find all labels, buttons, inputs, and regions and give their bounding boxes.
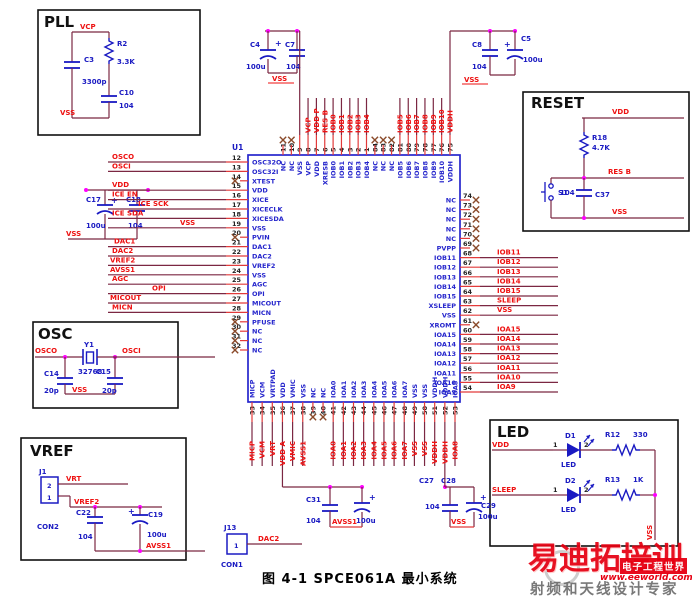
pin-number: 2 bbox=[47, 482, 52, 490]
pin-name: VCM bbox=[259, 382, 267, 398]
net-label: VSS bbox=[497, 306, 512, 314]
pin-name: NC bbox=[309, 388, 317, 398]
net-label: VSS bbox=[464, 76, 479, 84]
pin-name: VSS bbox=[421, 384, 429, 398]
net-label: VSS bbox=[66, 230, 81, 238]
pin-name: NC bbox=[252, 337, 262, 345]
pin-name: MICN bbox=[252, 309, 271, 317]
net-label: IOA14 bbox=[497, 335, 521, 343]
crystal-body bbox=[87, 352, 94, 363]
pin-name: IOA8 bbox=[452, 380, 460, 398]
net-label: AVSS1 bbox=[299, 441, 307, 466]
pin-name: IOA2 bbox=[350, 381, 358, 398]
net-label: IOA0 bbox=[330, 441, 338, 460]
pin-name: IOB15 bbox=[434, 293, 456, 301]
net-label: MICOUT bbox=[110, 294, 141, 302]
net-label: VMIC bbox=[289, 441, 297, 461]
pin-name: NC bbox=[446, 206, 456, 214]
component-ref: Y1 bbox=[83, 341, 94, 349]
polarity-plus: + bbox=[128, 507, 135, 516]
component-ref: C14 bbox=[44, 370, 59, 378]
component-ref: R18 bbox=[592, 134, 607, 142]
net-label: VDDH bbox=[431, 441, 439, 464]
net-label: VDDH bbox=[447, 110, 455, 133]
net-label: IOA13 bbox=[497, 345, 521, 353]
net-label: IOB11 bbox=[497, 249, 521, 257]
pin-number: 65 bbox=[463, 278, 473, 286]
pin-number: 24 bbox=[232, 267, 242, 275]
component-ref: J13 bbox=[223, 524, 236, 532]
component-value: 20p bbox=[102, 387, 117, 395]
component-value: 100u bbox=[147, 531, 167, 539]
pin-name: IOB3 bbox=[355, 161, 363, 178]
component-ref: C15 bbox=[96, 368, 111, 376]
pin-number: 21 bbox=[232, 239, 242, 247]
net-label: ICE SDA bbox=[112, 209, 144, 217]
component-value: 100u bbox=[86, 222, 106, 230]
pin-name: NC bbox=[446, 216, 456, 224]
component-ref: C3 bbox=[84, 56, 94, 64]
net-label: IOB2 bbox=[346, 114, 354, 133]
net-label: VDD A bbox=[279, 440, 287, 465]
net-label: VSS bbox=[612, 208, 627, 216]
pin-number: 72 bbox=[463, 211, 472, 219]
pin-name: IOB13 bbox=[434, 273, 456, 281]
component-ref: D1 bbox=[565, 432, 576, 440]
component-ref: R12 bbox=[605, 431, 620, 439]
component-value: 104 bbox=[128, 222, 143, 230]
component-value: 104 bbox=[286, 63, 301, 71]
component-value: 104 bbox=[78, 533, 93, 541]
net-label: VDDH bbox=[441, 441, 449, 464]
component-label: LED bbox=[561, 461, 576, 469]
pin-number: 57 bbox=[463, 355, 472, 363]
led-title: LED bbox=[497, 423, 529, 441]
component-ref: D2 bbox=[565, 477, 576, 485]
net-label: IOA11 bbox=[497, 364, 521, 372]
pin-name: IOA4 bbox=[370, 380, 378, 398]
net-label: IOB1 bbox=[338, 114, 346, 133]
net-label: DAC1 bbox=[114, 238, 135, 246]
junction-dot bbox=[84, 188, 88, 192]
pin-name: VSS bbox=[442, 312, 456, 320]
chip-ref: U1 bbox=[232, 143, 243, 152]
net-label: VCP bbox=[305, 117, 313, 133]
net-label: IOA3 bbox=[360, 441, 368, 460]
pin-name: IOB14 bbox=[434, 283, 456, 291]
polarity-plus: + bbox=[369, 493, 376, 502]
pin-number: 1 bbox=[553, 486, 558, 494]
component-ref: C19 bbox=[148, 511, 163, 519]
net-label: OPI bbox=[152, 285, 166, 293]
net-label: IOB3 bbox=[355, 114, 363, 133]
pin-number: 62 bbox=[463, 307, 472, 315]
component-value: 1K bbox=[633, 476, 644, 484]
pin-name: VDD bbox=[252, 187, 268, 195]
component-ref: C8 bbox=[472, 41, 482, 49]
component-ref: R13 bbox=[605, 476, 620, 484]
pin-number: 68 bbox=[463, 250, 473, 258]
pin-name: VREF2 bbox=[252, 262, 275, 270]
pin-name: XICESDA bbox=[252, 215, 284, 223]
pin-name: XTEST bbox=[252, 177, 276, 185]
pin-number: 23 bbox=[232, 257, 241, 265]
pin-number: 60 bbox=[463, 326, 473, 334]
pin-name: IOB12 bbox=[434, 264, 456, 272]
pin-name: OSC32O bbox=[252, 159, 282, 167]
component-value: 100u bbox=[356, 517, 376, 525]
pin-name: VSS bbox=[296, 161, 304, 175]
net-label: OSCO bbox=[112, 153, 134, 161]
pin-name: VSS bbox=[411, 384, 419, 398]
pin-name: NC bbox=[446, 225, 456, 233]
component-value: 104 bbox=[472, 63, 487, 71]
component-value: 330 bbox=[633, 431, 648, 439]
net-label: VSS bbox=[421, 441, 429, 456]
pin-number: 12 bbox=[232, 154, 241, 162]
net-label: IOA1 bbox=[340, 441, 348, 460]
pin-name: VSS bbox=[252, 224, 266, 232]
pin-number: 17 bbox=[232, 201, 241, 209]
capacitor-plate-curved bbox=[97, 211, 113, 214]
component-ref: C7 bbox=[285, 41, 295, 49]
net-label: IOA12 bbox=[497, 354, 521, 362]
pin-name: DAC1 bbox=[252, 243, 272, 251]
pin-name: XRESB bbox=[321, 161, 329, 185]
net-label: IOA4 bbox=[370, 441, 378, 460]
net-label: IOB14 bbox=[497, 277, 521, 285]
net-label: VSS bbox=[72, 386, 87, 394]
pin-name: VDD bbox=[279, 382, 287, 398]
net-label: MICN bbox=[112, 303, 133, 311]
pin-number: 1 bbox=[553, 441, 558, 449]
net-label: AGC bbox=[112, 275, 128, 283]
pin-name: NC bbox=[388, 161, 396, 171]
net-label: IOA2 bbox=[350, 441, 358, 460]
pin-number: 63 bbox=[463, 298, 472, 306]
net-label: IOB0 bbox=[330, 114, 338, 133]
pin-name: IOB4 bbox=[363, 161, 371, 179]
net-label: VCM bbox=[259, 441, 267, 459]
pin-number: 28 bbox=[232, 304, 242, 312]
pin-name: XICECLK bbox=[252, 206, 284, 214]
pin-name: VDDH bbox=[441, 377, 449, 398]
component-label: CON2 bbox=[37, 523, 59, 531]
component-value: 100u bbox=[246, 63, 266, 71]
pin-number: 25 bbox=[232, 276, 242, 284]
pin-name: NC bbox=[446, 235, 456, 243]
pin-number: 27 bbox=[232, 295, 241, 303]
net-label: VRT bbox=[66, 475, 81, 483]
pin-name: IOA13 bbox=[434, 350, 456, 358]
pin-name: XICE bbox=[252, 196, 269, 204]
net-label: IOA8 bbox=[452, 441, 460, 460]
pin-number: 59 bbox=[463, 336, 473, 344]
pin-name: VCP bbox=[305, 161, 313, 176]
component-ref: C4 bbox=[250, 41, 260, 49]
pin-number: 1 bbox=[47, 494, 52, 502]
pin-name: XROMT bbox=[430, 321, 457, 329]
pin-name: NC bbox=[288, 161, 296, 171]
pin-name: PVIN bbox=[252, 234, 270, 242]
net-label: AVSS1 bbox=[146, 542, 171, 550]
component-value: 104 bbox=[119, 102, 134, 110]
net-label: MICP bbox=[249, 441, 257, 461]
pll-title: PLL bbox=[44, 13, 75, 31]
pin-name: IOB8 bbox=[421, 161, 429, 179]
pin-name: IOB9 bbox=[430, 161, 438, 179]
pin-name: VSS bbox=[299, 384, 307, 398]
vref-title: VREF bbox=[30, 442, 74, 460]
pin-number: 1 bbox=[234, 542, 239, 550]
polarity-plus: + bbox=[480, 493, 487, 502]
net-label: IOB8 bbox=[421, 114, 429, 133]
switch-contact bbox=[549, 196, 553, 200]
net-label: IOA9 bbox=[497, 383, 516, 391]
net-label: IOA7 bbox=[401, 441, 409, 460]
net-label: VREF2 bbox=[110, 256, 135, 264]
pin-name: PFUSE bbox=[252, 318, 276, 326]
net-label: RES B bbox=[608, 168, 631, 176]
pin-number: 70 bbox=[463, 230, 473, 238]
capacitor-plate-curved bbox=[354, 509, 370, 512]
net-label: VREF2 bbox=[74, 498, 99, 506]
polarity-plus: + bbox=[275, 39, 282, 48]
net-label: IOA6 bbox=[391, 441, 399, 460]
pin-name: IOA7 bbox=[401, 381, 409, 398]
pin-name: IOA1 bbox=[340, 380, 348, 398]
pin-name: MICOUT bbox=[252, 300, 281, 308]
pin-name: NC bbox=[280, 161, 288, 171]
pin-name: VDDH bbox=[431, 377, 439, 398]
net-label: OSCO bbox=[35, 347, 57, 355]
component-ref: C27 bbox=[419, 477, 434, 485]
pin-name: IOA14 bbox=[434, 341, 456, 349]
net-label: IOA5 bbox=[380, 441, 388, 460]
pin-name: OSC32I bbox=[252, 168, 278, 176]
pin-number: 69 bbox=[463, 240, 473, 248]
net-label: DAC2 bbox=[112, 247, 133, 255]
capacitor-plate-curved bbox=[260, 56, 276, 59]
net-label: IOB10 bbox=[438, 109, 446, 133]
net-label: VSS bbox=[180, 219, 195, 227]
pin-name: VRTPAD bbox=[269, 369, 277, 398]
net-label: IOA15 bbox=[497, 325, 521, 333]
pin-number: 71 bbox=[463, 221, 473, 229]
component-value: 4.7K bbox=[592, 144, 610, 152]
pin-name: IOA11 bbox=[434, 369, 456, 377]
component-ref: C37 bbox=[595, 191, 610, 199]
capacitor-plate-curved bbox=[507, 56, 523, 59]
net-label: IOB13 bbox=[497, 268, 521, 276]
pin-name: NC bbox=[252, 347, 262, 355]
pin-name: VSS bbox=[252, 271, 266, 279]
net-label: VDD bbox=[612, 108, 629, 116]
pin-number: 66 bbox=[463, 269, 473, 277]
pin-number: 2 bbox=[584, 486, 589, 494]
net-label: VDD bbox=[492, 441, 509, 449]
component-ref: C22 bbox=[76, 509, 91, 517]
pin-name: VDD bbox=[313, 160, 321, 176]
net-label: VSS bbox=[451, 518, 466, 526]
pin-name: NC bbox=[371, 161, 379, 171]
pin-name: IOA6 bbox=[391, 380, 399, 398]
net-label: RES B bbox=[321, 110, 329, 133]
net-label: VSS bbox=[646, 525, 654, 540]
component-ref: R2 bbox=[117, 40, 127, 48]
pin-number: 64 bbox=[463, 288, 473, 296]
reset-title: RESET bbox=[531, 94, 585, 112]
pin-number: 56 bbox=[463, 365, 473, 373]
net-label: IOB15 bbox=[497, 287, 521, 295]
net-label: IOB4 bbox=[363, 114, 371, 133]
component-ref: C17 bbox=[86, 196, 101, 204]
pin-number: 26 bbox=[232, 286, 242, 294]
net-label: IOB9 bbox=[430, 114, 438, 133]
pin-name: VDDH bbox=[447, 161, 455, 182]
net-label: DAC2 bbox=[258, 535, 279, 543]
pin-number: 19 bbox=[232, 220, 242, 228]
pin-number: 58 bbox=[463, 346, 473, 354]
switch-contact bbox=[549, 184, 553, 188]
pin-name: IOA12 bbox=[434, 360, 456, 368]
capacitor-plate-curved bbox=[466, 509, 482, 512]
junction-dot bbox=[582, 216, 586, 220]
net-label: OSCI bbox=[122, 347, 141, 355]
osc-title: OSC bbox=[38, 325, 73, 343]
component-ref: J1 bbox=[38, 468, 47, 476]
component-value: 104 bbox=[425, 503, 440, 511]
pin-number: 73 bbox=[463, 202, 472, 210]
component-value: 3300p bbox=[82, 78, 107, 86]
pin-number: 16 bbox=[232, 192, 242, 200]
net-label: SLEEP bbox=[497, 297, 521, 305]
pin-name: MICP bbox=[249, 379, 257, 398]
net-label: VSS bbox=[411, 441, 419, 456]
pin-number: 22 bbox=[232, 248, 241, 256]
component-ref: C31 bbox=[306, 496, 321, 504]
pin-name: IOA15 bbox=[434, 331, 456, 339]
net-label: VDD P bbox=[313, 108, 321, 133]
component-ref: C5 bbox=[521, 35, 531, 43]
net-label: VSS bbox=[60, 109, 75, 117]
polarity-plus: + bbox=[504, 40, 511, 49]
component-label: CON1 bbox=[221, 561, 243, 569]
net-label: OSCI bbox=[112, 162, 131, 170]
component-label: LED bbox=[561, 506, 576, 514]
pin-name: IOB6 bbox=[405, 161, 413, 179]
net-label: IOB12 bbox=[497, 258, 521, 266]
junction-dot bbox=[653, 493, 657, 497]
pin-name: NC bbox=[252, 328, 262, 336]
pin-number: 54 bbox=[463, 384, 473, 392]
pin-name: IOB11 bbox=[434, 254, 456, 262]
net-label: IOB6 bbox=[405, 114, 413, 133]
pin-name: IOB1 bbox=[338, 161, 346, 179]
pin-number: 61 bbox=[463, 317, 473, 325]
pin-name: PVPP bbox=[437, 245, 457, 253]
component-ref: C28 bbox=[441, 477, 456, 485]
schematic-canvas: PLLRESETOSCVREFLEDVCPVSSC33300pR23.3KC10… bbox=[0, 0, 692, 596]
pin-name: IOB2 bbox=[346, 161, 354, 178]
component-value: 20p bbox=[44, 387, 59, 395]
component-value: 104 bbox=[306, 517, 321, 525]
pin-number: 13 bbox=[232, 163, 241, 171]
net-label: AVSS1 bbox=[332, 518, 357, 526]
pin-name: IOA3 bbox=[360, 381, 368, 398]
net-label: SLEEP bbox=[492, 486, 516, 494]
pin-name: NC bbox=[320, 388, 328, 398]
component-value: 100u bbox=[478, 513, 498, 521]
net-label: IOB5 bbox=[396, 114, 404, 133]
pin-number: 74 bbox=[463, 192, 473, 200]
component-value: 104 bbox=[560, 189, 575, 197]
pin-name: NC bbox=[446, 197, 456, 205]
pin-name: IOB10 bbox=[438, 161, 446, 183]
pin-name: VMIC bbox=[289, 379, 297, 398]
junction-dot bbox=[138, 549, 142, 553]
pin-number: 67 bbox=[463, 259, 472, 267]
figure-caption: 图 4-1 SPCE061A 最小系统 bbox=[262, 568, 458, 587]
net-label: IOA10 bbox=[497, 373, 521, 381]
pin-name: NC bbox=[380, 161, 388, 171]
pin-number: 15 bbox=[232, 182, 242, 190]
pin-name: IOB0 bbox=[330, 161, 338, 179]
chip-body bbox=[248, 155, 460, 402]
net-label: VSS bbox=[272, 75, 287, 83]
pin-number: 55 bbox=[463, 374, 473, 382]
component-value: 100u bbox=[523, 56, 543, 64]
net-label: VDD bbox=[112, 181, 129, 189]
component-value: 3.3K bbox=[117, 58, 135, 66]
net-label: IOB7 bbox=[413, 114, 421, 133]
component-ref: C10 bbox=[119, 89, 134, 97]
net-label: VCP bbox=[80, 23, 96, 31]
component-ref: C29 bbox=[481, 502, 496, 510]
pin-name: OPI bbox=[252, 290, 265, 298]
pin-name: IOA0 bbox=[330, 380, 338, 398]
net-label: ICE EN bbox=[112, 191, 138, 199]
reset-box bbox=[523, 92, 689, 231]
pin-name: DAC2 bbox=[252, 253, 272, 261]
pin-number: 2 bbox=[584, 441, 589, 449]
net-label: VRT bbox=[269, 441, 277, 456]
pin-name: IOA5 bbox=[380, 380, 388, 398]
pin-name: AGC bbox=[252, 281, 267, 289]
net-label: AVSS1 bbox=[110, 266, 135, 274]
pin-name: XSLEEP bbox=[429, 302, 457, 310]
schematic-page: PLLRESETOSCVREFLEDVCPVSSC33300pR23.3KC10… bbox=[0, 0, 692, 596]
pin-number: 18 bbox=[232, 210, 242, 218]
net-label: ICE SCK bbox=[138, 200, 169, 208]
pin-name: IOB5 bbox=[396, 161, 404, 179]
pin-name: IOB7 bbox=[413, 161, 421, 178]
